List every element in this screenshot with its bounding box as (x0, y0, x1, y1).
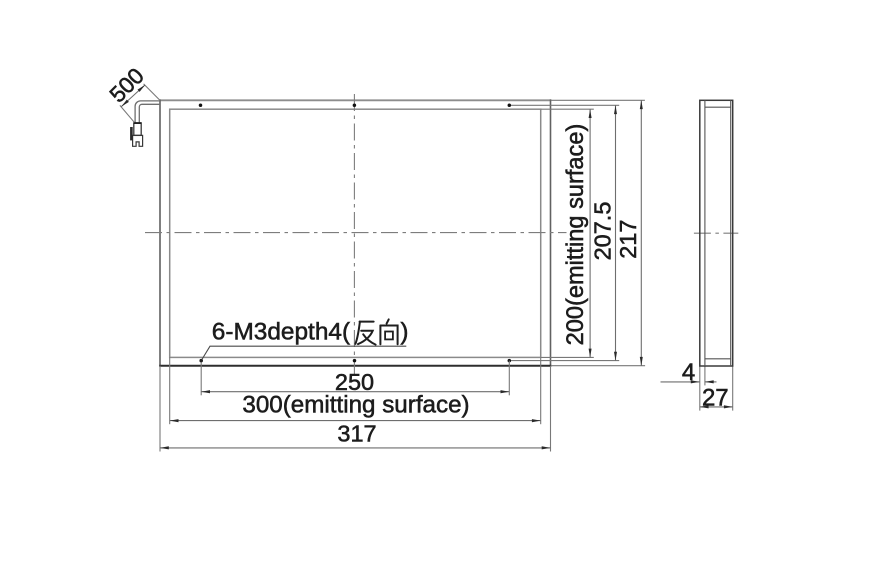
svg-text:217: 217 (615, 220, 641, 259)
svg-text:200(emitting surface): 200(emitting surface) (563, 124, 589, 346)
svg-text:27: 27 (702, 384, 729, 411)
svg-text:317: 317 (337, 421, 376, 447)
svg-text:6-M3depth4(: 6-M3depth4( (212, 319, 350, 346)
svg-text:4: 4 (682, 359, 695, 386)
svg-text:207.5: 207.5 (590, 202, 616, 261)
svg-text:): ) (400, 319, 408, 346)
svg-text:300(emitting surface): 300(emitting surface) (242, 391, 469, 418)
